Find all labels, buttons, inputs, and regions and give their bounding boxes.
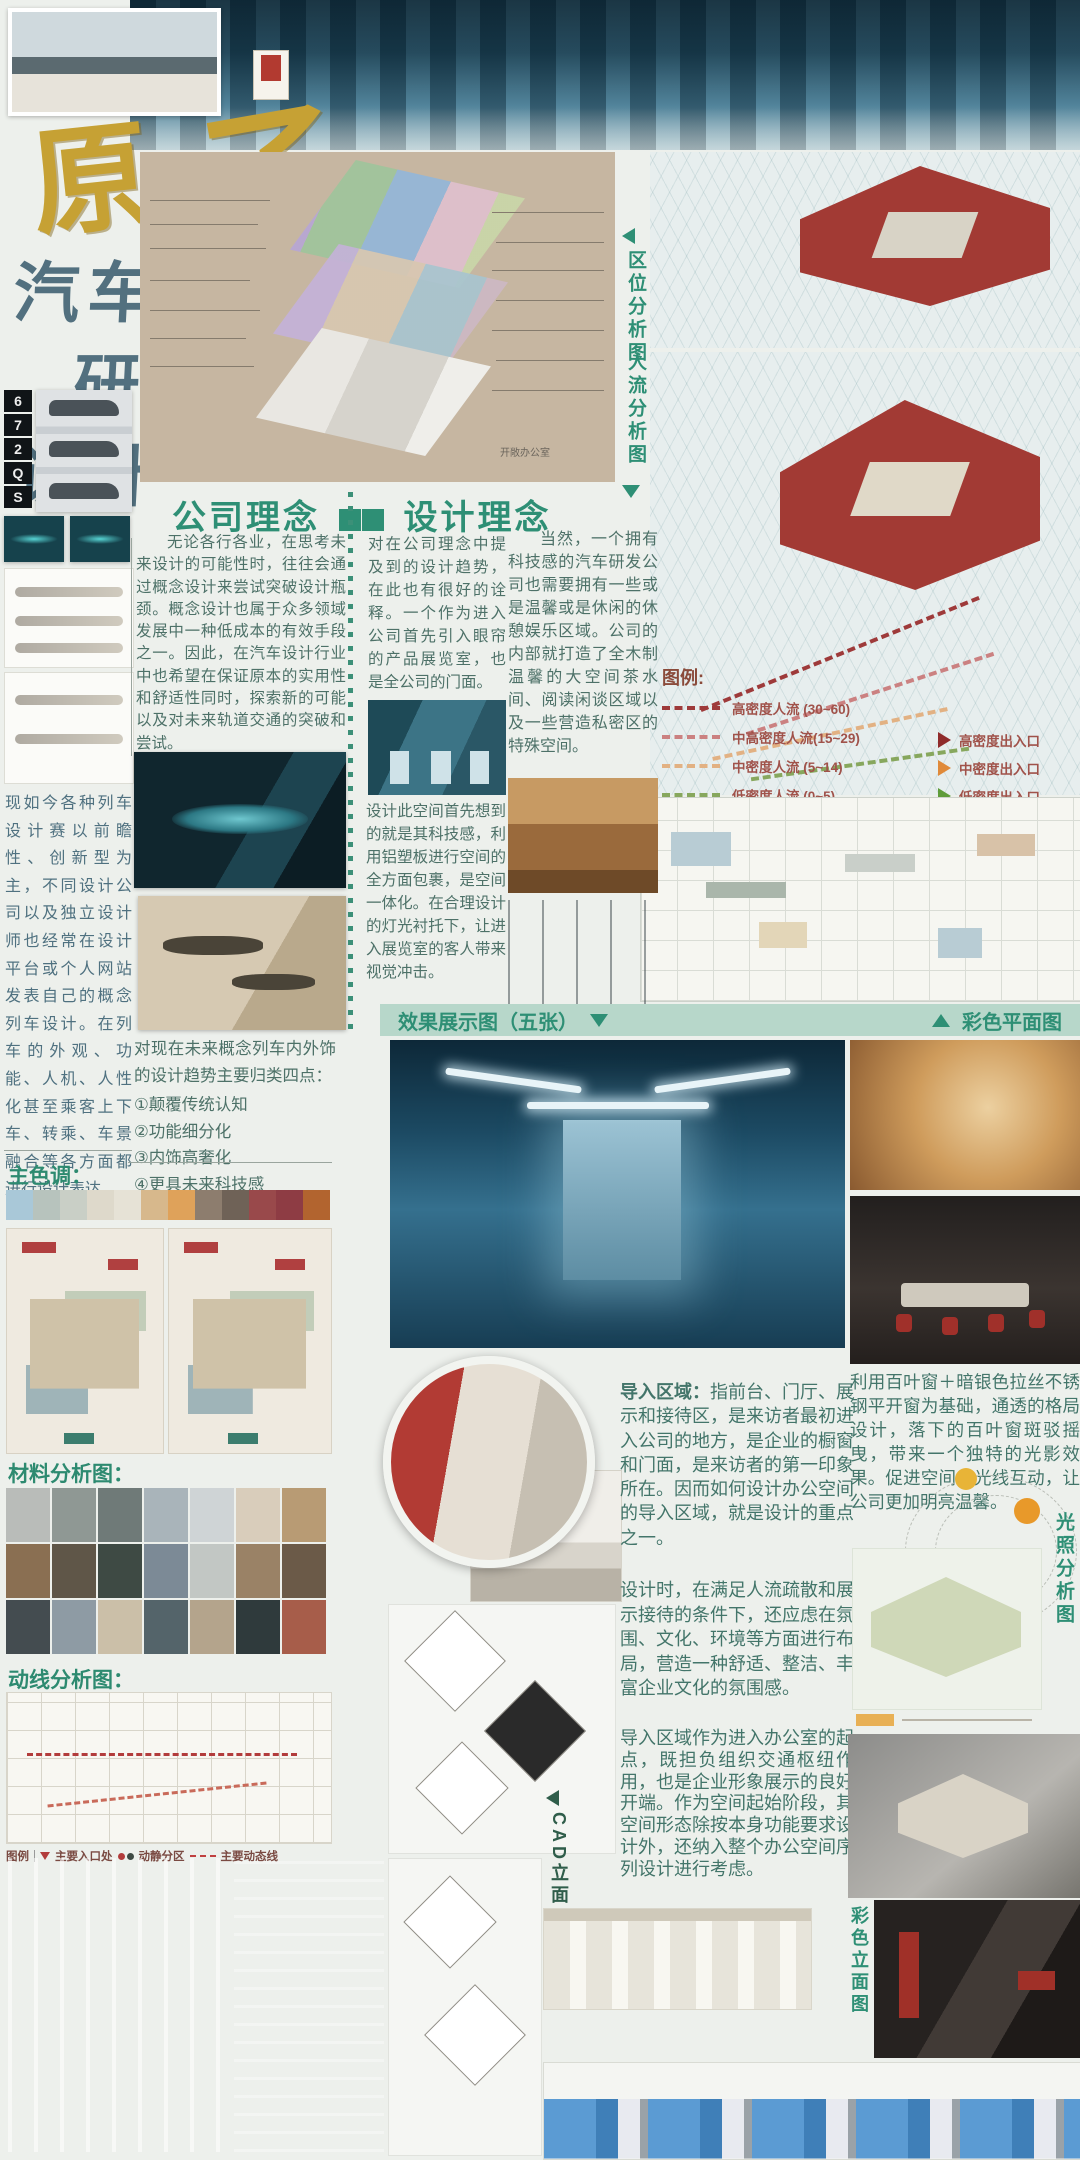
caption-swatch: [856, 1714, 894, 1726]
flow-analysis-label: 人流分析图: [622, 352, 646, 503]
axon-leader-left: [150, 280, 250, 281]
axon-leader-left: [150, 248, 266, 249]
dashed-line-icon: [662, 764, 720, 768]
axon-leader-right: [492, 330, 604, 331]
list-item: [190, 1488, 234, 1542]
axon-leader-right: [492, 270, 604, 271]
office-elevation-drawing: [543, 1908, 812, 2010]
effects-banner-right: 彩色平面图: [932, 1006, 1062, 1035]
axon-leader-left: [150, 310, 260, 311]
list-item: [87, 1190, 114, 1220]
axon-leader-right: [496, 360, 604, 361]
cad-drawing: [415, 1741, 508, 1834]
list-item: [98, 1544, 142, 1598]
green-square-icon: [362, 509, 384, 531]
concept-art-image: [134, 752, 346, 888]
axon-room-label: 开敞办公室: [500, 444, 550, 459]
sketch-mark: [163, 936, 263, 955]
list-item: [190, 1600, 234, 1654]
cad-drawing: [424, 1984, 526, 2086]
list-item: 2: [4, 438, 32, 460]
list-item: [144, 1600, 188, 1654]
list-item: [52, 1488, 96, 1542]
dashed-line-icon: [662, 735, 720, 739]
light-analysis-label: 光照分析图: [1050, 1512, 1077, 1652]
legend-row: 高密度出入口: [938, 730, 1040, 750]
iso-building-block: [898, 1774, 1028, 1858]
showroom-photo: [368, 700, 506, 795]
axon-leader-right: [496, 242, 604, 243]
plan-render-left: [6, 1228, 164, 1454]
list-item: [195, 1190, 222, 1220]
list-item: [236, 1544, 280, 1598]
circulation-heading: 动线分析图：: [8, 1664, 134, 1694]
trend-list: ①颠覆传统认知②功能细分化③内饰高奢化④更具未来科技感: [134, 1092, 336, 1198]
red-chair: [942, 1317, 958, 1335]
color-palette-strip: [6, 1190, 330, 1220]
calligraphy-title-char1: 原: [21, 78, 156, 260]
color-floor-plan: [640, 797, 1080, 1002]
cad-axon-cluster-top: [388, 1604, 616, 1854]
list-item: [168, 1190, 195, 1220]
materials-heading: 材料分析图：: [8, 1458, 134, 1488]
sketch-line: [15, 643, 123, 653]
design-col1-text-a: 对在公司理念中提及到的设计趋势，在此也有很好的诠释。一个作为进入公司首先引入眼帘…: [368, 533, 506, 694]
sketch-line: [15, 587, 123, 597]
red-chair: [988, 1314, 1004, 1332]
cad-drawing: [404, 1610, 506, 1712]
meeting-table: [901, 1283, 1030, 1307]
entry-area-lead: 导入区域：: [620, 1382, 710, 1402]
plan-render-right: [168, 1228, 332, 1454]
company-body-text: 无论各行各业，在思考未来设计的可能性时，往往会通过概念设计来尝试突破设计瓶颈。概…: [136, 532, 346, 755]
list-item: [6, 1190, 33, 1220]
axon-leader-right: [492, 390, 604, 391]
list-item: [249, 1190, 276, 1220]
color-elevation-drawing: [543, 2062, 1080, 2160]
list-item: [33, 1190, 60, 1220]
design-time-text: 设计时，在满足人流疏散和展示接待的条件下，还应虑在氛围、文化、环境等方面进行布局…: [620, 1578, 854, 1701]
entrance-arrow-icon: [938, 760, 951, 776]
sketch-line: [15, 616, 123, 626]
list-item: [144, 1488, 188, 1542]
flow-model-courtyard: [850, 462, 970, 516]
circulation-plan: [6, 1692, 332, 1844]
axon-leader-right: [492, 212, 604, 213]
car-sketch-panel: [4, 672, 134, 784]
divider-line: [128, 1162, 332, 1163]
list-item: ②功能细分化: [134, 1119, 336, 1146]
car-render-thumbnails: [36, 390, 132, 512]
effects-banner-left: 效果展示图（五张）: [398, 1006, 608, 1035]
side-letter-chips: 672QS: [4, 390, 32, 510]
concept-car-card: [4, 516, 64, 562]
list-item: [236, 1488, 280, 1542]
circulation-path: [27, 1753, 297, 1756]
triangle-up-icon: [932, 1014, 950, 1027]
list-item: Q: [4, 462, 32, 484]
list-item: ③内饰高奢化: [134, 1145, 336, 1172]
material-swatch-collage: [6, 1488, 330, 1654]
list-item: [282, 1600, 326, 1654]
courtyard: [872, 212, 979, 258]
concept-car-card: [70, 516, 130, 562]
sketch-mark: [232, 974, 315, 990]
list-item: [282, 1544, 326, 1598]
list-item: [190, 1544, 234, 1598]
list-item: [98, 1600, 142, 1654]
path-line-icon: [190, 1855, 216, 1857]
pedestal: [431, 751, 450, 783]
list-item: ①颠覆传统认知: [134, 1092, 336, 1119]
ceiling-light: [445, 1067, 581, 1093]
axon-leader-left: [150, 200, 270, 201]
effects-banner: 效果展示图（五张） 彩色平面图: [380, 1004, 1080, 1036]
blue-corridor-render: [390, 1040, 845, 1348]
list-item: [144, 1544, 188, 1598]
legend-row: 中密度出入口: [938, 758, 1040, 778]
list-item: [282, 1488, 326, 1542]
orbit-dot: [955, 1468, 977, 1490]
car-silhouette: [49, 483, 118, 499]
list-item: 7: [4, 414, 32, 436]
list-item: [114, 1190, 141, 1220]
flow-legend-title: 图例:: [662, 664, 922, 690]
cad-drawing: [484, 1680, 586, 1782]
entry-area-text: 导入区域：指前台、门厅、展示和接待区，是来访者最初进入公司的地方，是企业的橱窗和…: [620, 1380, 854, 1550]
axon-leader-left: [150, 224, 258, 225]
office-photo-small: [234, 1858, 384, 2152]
design-col2-text: 当然，一个拥有科技感的汽车研发公司也需要拥有一些或是温馨或是休闲的休憩娱乐区域。…: [508, 528, 658, 758]
arrow-down-icon: [622, 485, 640, 498]
office-photo-large: [8, 1858, 230, 2152]
cad-drawing: [403, 1875, 496, 1968]
dashed-line-icon: [662, 706, 720, 710]
divider-line: [131, 538, 132, 756]
cad-axon-cluster-bottom: [388, 1858, 542, 2156]
corridor-end-wall: [563, 1120, 681, 1280]
entrance-arrow-icon: [938, 732, 951, 748]
list-item: 6: [4, 390, 32, 412]
list-item: [276, 1190, 303, 1220]
list-item: [222, 1190, 249, 1220]
axon-leader-right: [496, 300, 604, 301]
pedestal: [470, 751, 489, 783]
axon-leader-left: [150, 366, 254, 367]
car-silhouette: [49, 441, 118, 457]
caption-line: [902, 1719, 1032, 1721]
arrow-left-icon: [622, 228, 635, 244]
dark-room-render: [874, 1900, 1080, 2058]
warm-curved-room-render: [850, 1040, 1080, 1190]
red-accent: [1018, 1971, 1055, 1990]
orbit-dot: [1014, 1498, 1040, 1524]
trends-intro-text: 对现在未来概念列车内外饰的设计趋势主要归类四点：: [134, 1036, 336, 1090]
flow-legend: 图例: 高密度人流 (30~60) 中高密度人流(15~29) 中密度人流 (5…: [662, 664, 922, 814]
light-analysis-axon: [852, 1548, 1042, 1710]
triangle-down-icon: [590, 1014, 608, 1027]
list-item: [141, 1190, 168, 1220]
list-item: [98, 1488, 142, 1542]
dotted-divider: [348, 492, 353, 1037]
list-item: [52, 1600, 96, 1654]
color-elevation-label: 彩色立面图: [846, 1906, 872, 2056]
meeting-room-render: [850, 1196, 1080, 1364]
legend-row: 中密度人流 (5~14): [662, 756, 922, 776]
sketch-line: [15, 734, 123, 744]
design-col1-text-b: 设计此空间首先想到的就是其科技感，利用铝塑板进行空间的全方面包裹，是空间一体化。…: [366, 800, 506, 984]
car-sketch-panel: [4, 568, 134, 668]
gray-axon-render: [848, 1734, 1080, 1898]
ceiling-light: [527, 1102, 709, 1109]
red-cabinet-circle-photo: [383, 1356, 595, 1568]
design-poster: 原 子 汽车 研发 设计 开敞办公室 区位分析图 人流分析图: [0, 0, 1080, 2160]
list-item: [6, 1544, 50, 1598]
legend-row: 中高密度人流(15~29): [662, 727, 922, 747]
axon-leader-left: [150, 338, 246, 339]
list-item: [236, 1600, 280, 1654]
list-item: [60, 1190, 87, 1220]
list-item: [52, 1544, 96, 1598]
exploded-axonometric-diagram: 开敞办公室: [140, 152, 615, 482]
list-item: [6, 1488, 50, 1542]
list-item: [6, 1600, 50, 1654]
divider-line: [4, 1150, 132, 1151]
red-chair: [1029, 1310, 1045, 1328]
arrow-left-icon: [546, 1790, 559, 1806]
ceiling-light: [654, 1067, 790, 1093]
circulation-path: [47, 1782, 266, 1808]
concept-sketch-image: [138, 896, 346, 1030]
red-chair: [896, 1314, 912, 1332]
pedestal: [390, 751, 409, 783]
tea-room-photo: [508, 778, 658, 893]
iso-building-block: [871, 1577, 1021, 1677]
list-item: [303, 1190, 330, 1220]
entry-role-text: 导入区域作为进入办公室的起点，既担负组织交通枢纽作用，也是企业形象展示的良好开端…: [620, 1728, 854, 1881]
location-analysis-map: [650, 152, 1080, 348]
list-item: S: [4, 486, 32, 508]
main-colors-heading: 主色调：: [8, 1160, 92, 1190]
red-accent: [899, 1932, 920, 2019]
sketch-line: [15, 695, 123, 705]
light-axon-caption: [856, 1714, 1046, 1726]
car-silhouette: [49, 400, 118, 416]
left-intro-text: 现如今各种列车设计赛以前瞻性、创新型为主，不同设计公司以及独立设计师也经常在设计…: [5, 790, 132, 1204]
legend-row: 高密度人流 (30~60): [662, 698, 922, 718]
